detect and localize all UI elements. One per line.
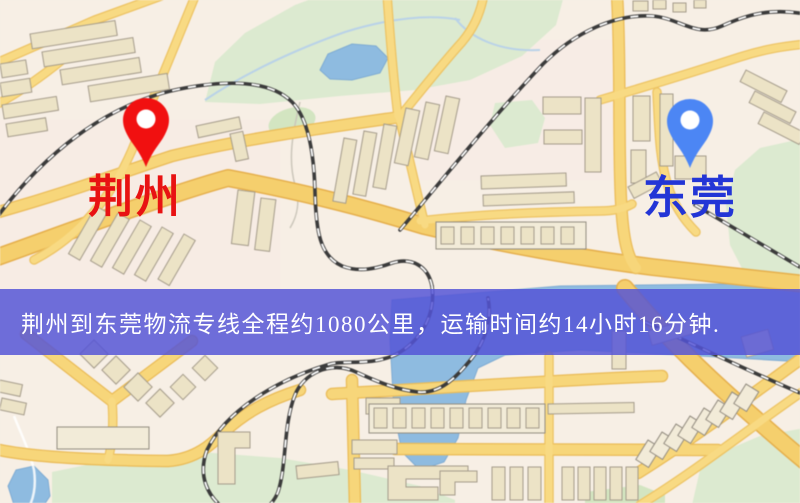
- origin-city-label: 荆州: [88, 174, 182, 221]
- route-info-banner: 荆州到东莞物流专线全程约1080公里，运输时间约14小时16分钟.: [0, 289, 800, 355]
- route-info-text: 荆州到东莞物流专线全程约1080公里，运输时间约14小时16分钟.: [0, 305, 720, 339]
- destination-city-label: 东莞: [643, 175, 737, 222]
- map-view: 荆州 东莞 荆州到东莞物流专线全程约1080公里，运输时间约14小时16分钟.: [0, 0, 800, 503]
- map-canvas: [0, 0, 800, 503]
